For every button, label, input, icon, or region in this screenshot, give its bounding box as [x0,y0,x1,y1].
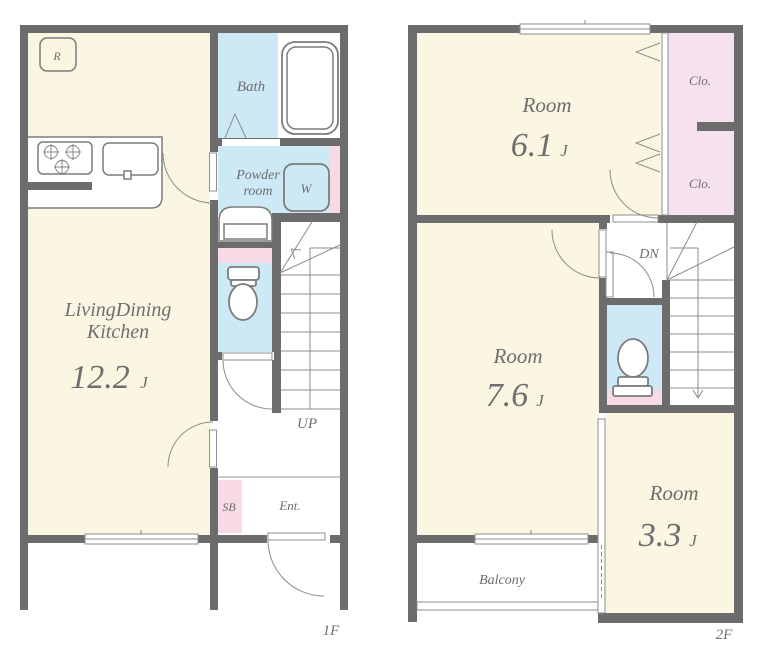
room61-label: Room [522,93,572,117]
stairs-up-label: UP [297,416,317,432]
room33-label: Room [649,481,699,505]
kitchen-counter [28,137,162,208]
stairs-1f-arrow [291,249,301,259]
balcony-railing [417,602,598,610]
room33-size: 3.3 [638,517,682,554]
closet-upper-label: Clo. [689,73,711,88]
sink-faucet [124,171,131,179]
ldk-label-2: Kitchen [86,321,149,343]
shoebox-label: SB [222,500,236,514]
washer-label: W [301,181,313,196]
stairs-1f [280,222,340,409]
closet-door-track [662,33,668,215]
room-ldk [28,33,210,535]
bath-label: Bath [237,79,265,95]
room-33 [605,413,734,613]
room76-label: Room [493,344,543,368]
entrance-label: Ent. [278,498,300,513]
ldk-size: 12.2 [70,359,130,396]
door-toilet-1f [223,353,272,409]
toilet-1f [228,267,259,320]
balcony-label: Balcony [479,573,526,588]
floorplan-drawing: R Bath Powder room W LivingDining Kitche… [0,0,757,650]
fridge-label: R [52,49,61,63]
stairs-down-label: DN [638,247,659,262]
room-61 [417,33,662,215]
floor2-room-fills [417,33,734,613]
bath-door-gap [222,139,280,146]
floor-label-2f: 2F [716,627,734,643]
floorplan-canvas: R Bath Powder room W LivingDining Kitche… [0,0,757,650]
powder-room-label-2: room [243,184,272,199]
room61-size: 6.1 [511,127,554,164]
bathtub [282,42,338,134]
room76-size: 7.6 [486,377,529,414]
closet-lower-label: Clo. [689,176,711,191]
vanity-basin [219,207,272,241]
floor-label-1f: 1F [323,623,341,639]
powder-room-label-1: Powder [235,168,280,183]
sliding-window-room61 [520,20,650,34]
powder-pink-strip [330,145,340,215]
ldk-label-1: LivingDining [64,299,172,321]
toilet1f-pink-strip [218,248,273,263]
counter-partition [28,182,92,190]
stairs-2f [667,222,734,398]
